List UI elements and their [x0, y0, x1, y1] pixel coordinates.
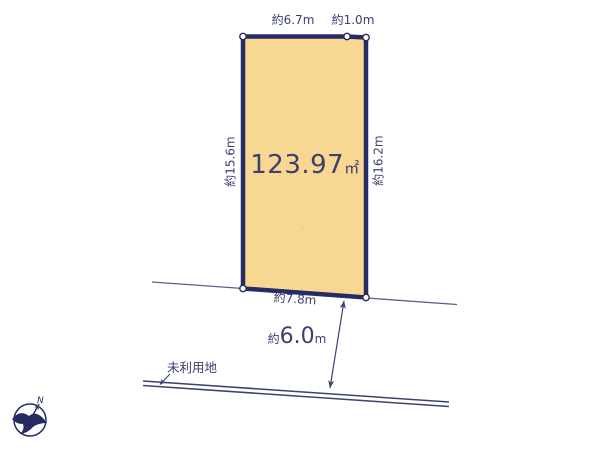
parcel-area-unit: ㎡ [344, 159, 360, 177]
road-edge-line-lower [143, 386, 449, 407]
vertex-marker [344, 33, 350, 39]
diagram-drawing: N [0, 0, 600, 450]
survey-dot [301, 226, 305, 230]
north-compass-icon: N [12, 396, 47, 436]
road-distance-value: 6.0 [280, 324, 315, 349]
vertex-marker [240, 285, 246, 291]
unused-land-label: 未利用地 [167, 361, 227, 375]
road-distance-label: 約6.0m [252, 324, 342, 349]
parcel-area-label: 123.97㎡ [230, 150, 380, 180]
vertex-marker [363, 294, 369, 300]
vertex-marker [240, 33, 246, 39]
parcel-area-value: 123.97 [250, 150, 344, 180]
land-plot-diagram: N 約6.7m 約1.0m 約15.6m 約16.2m 約7.8m 123.97… [0, 0, 600, 450]
road-edge-line-upper [143, 381, 449, 402]
vertex-marker [363, 34, 369, 40]
neighbor-boundary-line-left [152, 282, 243, 289]
road-distance-unit: m [315, 332, 327, 346]
dimension-top-offset: 約1.0m [318, 14, 388, 27]
compass-north-label: N [37, 396, 44, 406]
neighbor-boundary-line-right [367, 298, 458, 305]
road-distance-prefix: 約 [268, 332, 280, 346]
